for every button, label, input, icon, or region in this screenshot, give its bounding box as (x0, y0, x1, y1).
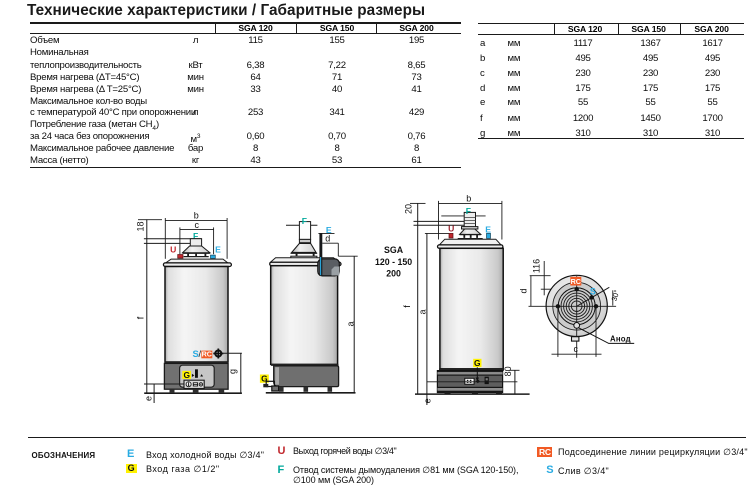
svg-text:Анод: Анод (610, 335, 631, 344)
svg-text:c: c (194, 220, 199, 230)
svg-text:30°: 30° (609, 289, 621, 302)
svg-text:U: U (448, 224, 454, 234)
svg-text:S: S (590, 287, 596, 297)
svg-text:c: c (573, 344, 578, 354)
svg-text:F: F (302, 216, 307, 226)
svg-text:f: f (402, 305, 412, 308)
svg-text:F: F (466, 206, 471, 216)
svg-text:d: d (519, 288, 529, 293)
svg-text:20: 20 (404, 204, 414, 214)
svg-text:18: 18 (136, 221, 146, 231)
svg-text:120 - 150: 120 - 150 (375, 257, 412, 267)
svg-text:G: G (474, 358, 481, 368)
svg-text:a: a (417, 309, 427, 314)
svg-text:U: U (170, 244, 176, 254)
svg-text:RC: RC (571, 277, 581, 286)
svg-text:d: d (325, 234, 330, 244)
svg-text:f: f (136, 316, 146, 319)
svg-text:g: g (228, 369, 238, 374)
svg-text:a: a (346, 321, 356, 326)
svg-text:200: 200 (386, 269, 401, 279)
svg-text:b: b (194, 211, 199, 221)
svg-text:G: G (183, 370, 190, 380)
svg-text:80: 80 (503, 366, 513, 376)
svg-text:e: e (144, 396, 154, 401)
svg-text:116: 116 (531, 259, 541, 273)
svg-text:b: b (466, 193, 471, 203)
svg-text:SGA: SGA (384, 245, 404, 255)
svg-text:E: E (215, 245, 221, 255)
svg-text:RC: RC (202, 350, 212, 359)
